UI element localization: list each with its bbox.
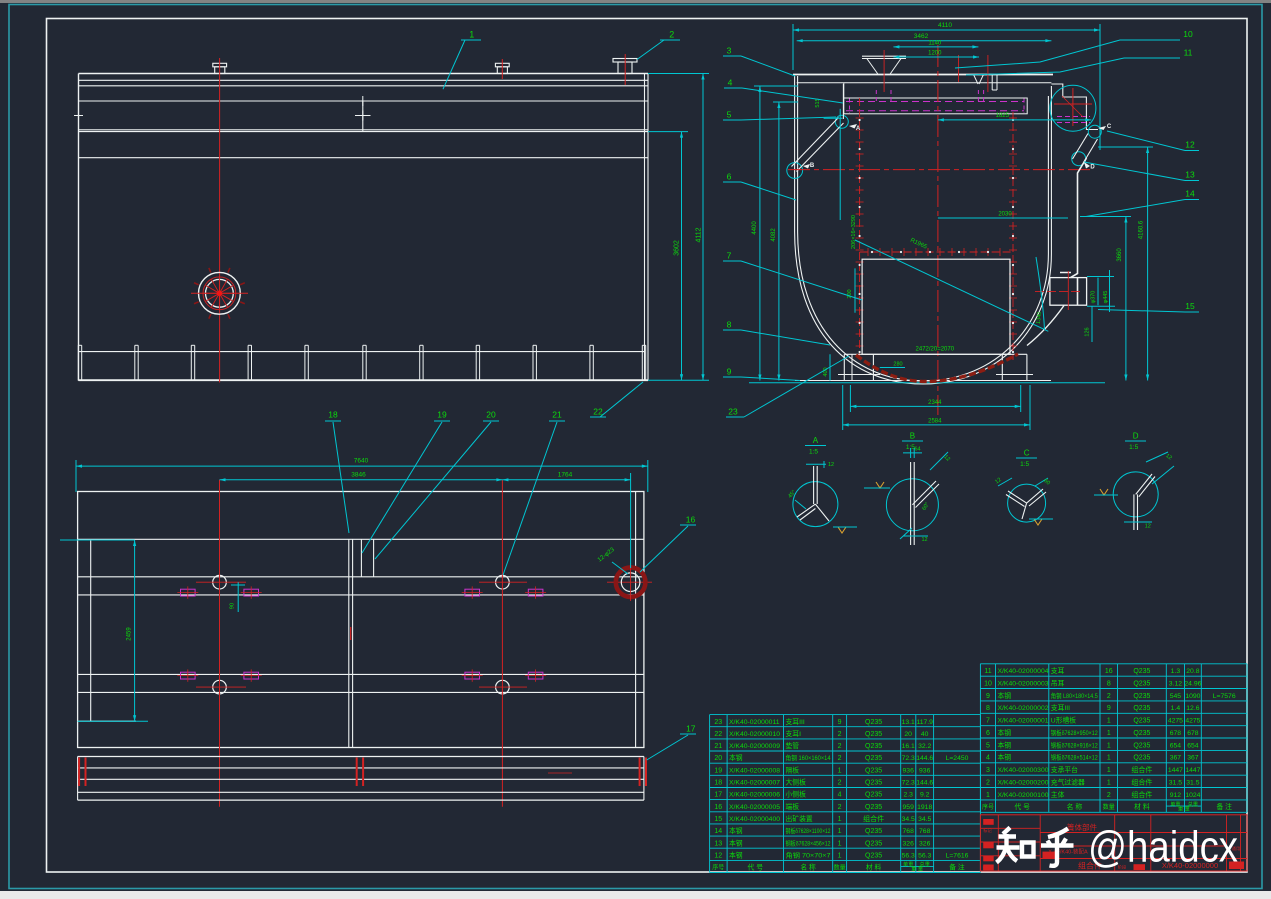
svg-text:L=7616: L=7616 (946, 852, 969, 859)
svg-text:本钢: 本钢 (729, 753, 743, 762)
svg-text:钢板δ7628×456×12: 钢板δ7628×456×12 (786, 838, 831, 847)
svg-text:9: 9 (986, 693, 990, 700)
svg-text:6: 6 (727, 172, 732, 182)
svg-text:19: 19 (437, 410, 447, 420)
svg-text:8: 8 (986, 705, 990, 712)
svg-text:9: 9 (1107, 705, 1111, 712)
svg-text:出矿装置: 出矿装置 (786, 814, 813, 823)
svg-text:13: 13 (714, 840, 722, 847)
svg-text:Q235: Q235 (1133, 693, 1150, 700)
svg-text:13.1: 13.1 (902, 719, 915, 726)
svg-text:8: 8 (727, 320, 732, 330)
svg-text:φ370: φ370 (1091, 291, 1097, 304)
svg-text:主体: 主体 (1051, 790, 1065, 799)
svg-text:Q235: Q235 (865, 719, 882, 726)
svg-text:备 注: 备 注 (1216, 802, 1232, 811)
svg-text:16.1: 16.1 (902, 743, 915, 750)
svg-text:小侧板: 小侧板 (786, 790, 807, 799)
svg-text:X/K40-02000200: X/K40-02000200 (998, 780, 1049, 787)
svg-text:2: 2 (838, 743, 842, 750)
svg-text:角钢 L80×180×14.5: 角钢 L80×180×14.5 (1051, 691, 1098, 700)
svg-text:367: 367 (1170, 755, 1182, 762)
svg-text:本钢: 本钢 (729, 838, 743, 847)
svg-text:56.3: 56.3 (918, 852, 931, 859)
svg-text:钢板δ7628×1100×12: 钢板δ7628×1100×12 (786, 826, 831, 835)
svg-text:936: 936 (919, 767, 931, 774)
svg-text:3602: 3602 (674, 240, 681, 256)
svg-text:20.8: 20.8 (1186, 668, 1199, 675)
svg-text:1: 1 (838, 828, 842, 835)
svg-text:L=7576: L=7576 (1213, 693, 1236, 700)
svg-text:367: 367 (1187, 755, 1199, 762)
svg-text:3846: 3846 (351, 472, 366, 479)
svg-text:D: D (1133, 432, 1139, 441)
svg-text:2: 2 (838, 755, 842, 762)
svg-text:959: 959 (903, 804, 915, 811)
svg-text:17: 17 (714, 792, 722, 799)
svg-text:2: 2 (1107, 693, 1111, 700)
svg-text:936: 936 (903, 767, 915, 774)
svg-text:678: 678 (1170, 730, 1182, 737)
svg-text:280: 280 (893, 361, 902, 367)
svg-text:15: 15 (714, 816, 722, 823)
svg-text:序号: 序号 (982, 803, 994, 811)
svg-text:重 量: 重 量 (911, 865, 923, 873)
svg-text:2: 2 (838, 780, 842, 787)
svg-text:7: 7 (986, 718, 990, 725)
svg-text:U形槽板: U形槽板 (1051, 716, 1077, 725)
svg-text:72.3: 72.3 (902, 780, 915, 787)
svg-text:组合件: 组合件 (1131, 790, 1152, 799)
svg-text:1: 1 (986, 792, 990, 799)
svg-text:X/K40-02000003: X/K40-02000003 (998, 681, 1049, 688)
svg-text:X/K40-02000011: X/K40-02000011 (729, 719, 780, 726)
svg-text:组合件: 组合件 (863, 814, 884, 823)
svg-text:3: 3 (727, 46, 732, 56)
svg-text:2344: 2344 (928, 400, 942, 406)
svg-text:X/K40-02000009: X/K40-02000009 (729, 743, 780, 750)
svg-text:序号: 序号 (712, 864, 724, 872)
svg-text:Q235: Q235 (865, 792, 882, 799)
svg-text:10: 10 (984, 681, 992, 688)
svg-text:545: 545 (1170, 693, 1182, 700)
svg-text:9: 9 (838, 719, 842, 726)
svg-text:1447: 1447 (1185, 767, 1200, 774)
svg-text:Q235: Q235 (865, 804, 882, 811)
svg-text:17: 17 (686, 724, 696, 734)
svg-text:A: A (813, 436, 819, 445)
svg-text:1825: 1825 (996, 113, 1010, 119)
svg-text:重 量: 重 量 (1178, 804, 1190, 812)
svg-text:组合件: 组合件 (1131, 765, 1152, 774)
svg-text:4112: 4112 (696, 227, 703, 242)
svg-text:Q235: Q235 (1133, 730, 1150, 737)
svg-text:20: 20 (486, 410, 496, 420)
svg-text:5: 5 (986, 742, 990, 749)
svg-text:吊耳: 吊耳 (1051, 680, 1065, 688)
svg-text:2: 2 (838, 731, 842, 738)
svg-text:Q235: Q235 (865, 852, 882, 859)
svg-text:21: 21 (714, 743, 722, 750)
svg-text:4275: 4275 (1168, 718, 1183, 725)
svg-text:1: 1 (1107, 755, 1111, 762)
svg-text:Q235: Q235 (1133, 668, 1150, 675)
svg-text:1200: 1200 (928, 51, 942, 57)
svg-text:12: 12 (828, 462, 834, 468)
svg-text:Q235: Q235 (865, 767, 882, 774)
svg-text:2: 2 (986, 780, 990, 787)
svg-text:Q235: Q235 (865, 840, 882, 847)
svg-text:X/K40-02000400: X/K40-02000400 (729, 816, 780, 823)
svg-text:垫管: 垫管 (786, 741, 800, 750)
svg-text:1.3: 1.3 (1171, 668, 1181, 675)
svg-text:1: 1 (1107, 780, 1111, 787)
svg-text:1: 1 (838, 840, 842, 847)
svg-text:64: 64 (914, 447, 920, 453)
svg-text:18: 18 (714, 780, 722, 787)
svg-text:126: 126 (1084, 327, 1090, 336)
svg-text:2.3: 2.3 (903, 792, 913, 799)
svg-text:19: 19 (714, 767, 722, 774)
svg-text:31.5: 31.5 (1186, 780, 1199, 787)
svg-text:16: 16 (1105, 668, 1113, 675)
svg-text:4160.6: 4160.6 (1139, 220, 1145, 239)
svg-text:2: 2 (838, 804, 842, 811)
svg-text:206×16=3290: 206×16=3290 (851, 215, 857, 249)
svg-text:B: B (910, 432, 915, 441)
svg-text:代 号: 代 号 (748, 863, 764, 872)
svg-text:1918: 1918 (917, 804, 932, 811)
svg-text:15: 15 (1185, 301, 1195, 311)
svg-text:材 料: 材 料 (866, 863, 882, 872)
svg-text:C: C (1024, 449, 1030, 458)
svg-text:5: 5 (727, 110, 732, 120)
svg-text:8: 8 (1107, 681, 1111, 688)
svg-text:4: 4 (728, 78, 733, 88)
svg-text:22: 22 (593, 407, 603, 417)
svg-text:18: 18 (328, 410, 338, 420)
svg-text:1: 1 (838, 816, 842, 823)
svg-text:X/K40-02000300: X/K40-02000300 (998, 767, 1049, 774)
svg-text:14: 14 (714, 828, 722, 835)
svg-text:X/K40-02000007: X/K40-02000007 (729, 780, 780, 787)
svg-text:10: 10 (1183, 29, 1193, 39)
svg-text:14: 14 (1185, 189, 1195, 199)
svg-text:隔板: 隔板 (786, 765, 800, 774)
svg-text:654: 654 (1187, 742, 1199, 749)
svg-text:4275: 4275 (1185, 718, 1200, 725)
svg-text:912: 912 (1170, 792, 1182, 799)
svg-text:支耳III: 支耳III (1051, 703, 1070, 712)
svg-text:A: A (856, 126, 861, 132)
svg-text:钢板δ7628×916×12: 钢板δ7628×916×12 (1051, 740, 1098, 749)
svg-text:本钢: 本钢 (998, 728, 1012, 737)
svg-text:X/K40-02000002: X/K40-02000002 (998, 705, 1049, 712)
svg-text:支耳I: 支耳I (786, 729, 802, 738)
svg-text:1:5: 1:5 (809, 449, 818, 456)
svg-text:Q235: Q235 (865, 780, 882, 787)
svg-text:X/K40-02000010: X/K40-02000010 (729, 731, 780, 738)
svg-text:1: 1 (838, 767, 842, 774)
svg-text:X/K40-02000006: X/K40-02000006 (729, 792, 780, 799)
svg-text:32.2: 32.2 (918, 743, 931, 750)
svg-text:Q235: Q235 (1133, 718, 1150, 725)
svg-text:本钢: 本钢 (998, 753, 1012, 762)
svg-text:X/K40-02000100: X/K40-02000100 (998, 792, 1049, 799)
svg-text:56.3: 56.3 (902, 852, 915, 859)
svg-text:13: 13 (1185, 170, 1195, 180)
svg-text:2: 2 (669, 30, 674, 40)
svg-text:2: 2 (1107, 792, 1111, 799)
svg-text:X/K40-02000005: X/K40-02000005 (729, 804, 780, 811)
svg-text:1: 1 (469, 30, 474, 40)
svg-text:标记: 标记 (983, 827, 992, 834)
svg-text:名 称: 名 称 (800, 863, 816, 872)
svg-text:Q235: Q235 (865, 743, 882, 750)
svg-text:23: 23 (714, 719, 722, 726)
svg-text:326: 326 (903, 840, 915, 847)
svg-text:Q235: Q235 (1133, 681, 1150, 688)
svg-text:34.5: 34.5 (918, 816, 931, 823)
svg-text:12: 12 (1185, 140, 1195, 150)
svg-text:768: 768 (919, 828, 931, 835)
svg-text:117.9: 117.9 (916, 719, 933, 726)
svg-text:3.12: 3.12 (1169, 681, 1182, 688)
svg-text:768: 768 (903, 828, 915, 835)
svg-text:4110: 4110 (938, 22, 952, 29)
svg-text:4: 4 (838, 792, 842, 799)
svg-text:@haidcx: @haidcx (1088, 823, 1238, 872)
svg-text:B: B (810, 163, 815, 169)
svg-text:1: 1 (1107, 742, 1111, 749)
svg-text:φ445: φ445 (1103, 291, 1109, 304)
svg-text:支耳: 支耳 (1051, 666, 1065, 675)
svg-text:支承平台: 支承平台 (1051, 765, 1078, 774)
svg-text:本钢: 本钢 (998, 740, 1012, 749)
svg-text:3660: 3660 (1117, 248, 1123, 262)
svg-text:34.5: 34.5 (902, 816, 915, 823)
svg-text:6: 6 (986, 730, 990, 737)
svg-text:本钢: 本钢 (998, 691, 1012, 700)
svg-text:C: C (1107, 124, 1112, 130)
svg-text:名 称: 名 称 (1067, 802, 1083, 811)
svg-text:144.6: 144.6 (916, 755, 933, 762)
svg-text:2472/20=2070: 2472/20=2070 (916, 346, 955, 352)
svg-text:20: 20 (904, 731, 912, 738)
svg-text:20: 20 (714, 755, 722, 762)
svg-text:4400: 4400 (752, 221, 758, 235)
svg-text:1447: 1447 (1168, 767, 1183, 774)
svg-text:1090: 1090 (1185, 693, 1200, 700)
svg-text:L=2450: L=2450 (946, 755, 969, 762)
svg-text:1: 1 (1107, 767, 1111, 774)
svg-text:1: 1 (838, 852, 842, 859)
svg-text:22: 22 (714, 731, 722, 738)
svg-text:Q235: Q235 (865, 755, 882, 762)
svg-text:40: 40 (921, 731, 929, 738)
svg-text:12: 12 (1145, 524, 1151, 530)
svg-text:本钢: 本钢 (729, 850, 743, 859)
svg-text:钢板δ7628×514×12: 钢板δ7628×514×12 (1051, 753, 1098, 762)
svg-text:角钢 160×160×14: 角钢 160×160×14 (786, 753, 831, 762)
svg-text:326: 326 (919, 840, 931, 847)
svg-text:数量: 数量 (834, 864, 846, 872)
svg-text:90: 90 (230, 603, 236, 609)
svg-text:备 注: 备 注 (949, 863, 965, 872)
svg-text:端板: 端板 (786, 802, 800, 811)
svg-text:X.4F/K40-装配A: X.4F/K40-装配A (1048, 848, 1088, 856)
svg-text:Q235: Q235 (1133, 742, 1150, 749)
svg-text:1764: 1764 (558, 472, 573, 479)
svg-text:2459: 2459 (127, 627, 133, 641)
svg-text:4: 4 (986, 755, 990, 762)
svg-text:31.5: 31.5 (1169, 780, 1182, 787)
svg-text:2584: 2584 (928, 418, 942, 424)
svg-text:支耳III: 支耳III (786, 717, 805, 726)
svg-text:X/K40-02000008: X/K40-02000008 (729, 767, 780, 774)
svg-text:7: 7 (727, 251, 732, 261)
svg-text:9: 9 (727, 367, 732, 377)
svg-text:16: 16 (714, 804, 722, 811)
svg-text:4082: 4082 (771, 228, 777, 242)
svg-text:Q235: Q235 (865, 828, 882, 835)
svg-text:X/K40-02000004: X/K40-02000004 (998, 668, 1049, 675)
svg-text:678: 678 (1187, 730, 1199, 737)
svg-text:1024: 1024 (1185, 792, 1200, 799)
svg-text:X/K40-02000001: X/K40-02000001 (998, 718, 1049, 725)
svg-text:充气过滤器: 充气过滤器 (1051, 778, 1085, 787)
svg-text:D: D (1090, 165, 1095, 171)
svg-text:1: 1 (1107, 730, 1111, 737)
svg-text:144.6: 144.6 (916, 780, 933, 787)
svg-text:Q235: Q235 (1133, 705, 1150, 712)
svg-text:代 号: 代 号 (1014, 802, 1030, 811)
svg-text:12.6: 12.6 (1186, 705, 1199, 712)
svg-text:7640: 7640 (354, 458, 369, 465)
svg-text:654: 654 (1170, 742, 1182, 749)
svg-text:3462: 3462 (914, 33, 929, 40)
svg-text:角钢 70×70×7: 角钢 70×70×7 (786, 850, 831, 859)
svg-text:12: 12 (714, 852, 722, 859)
svg-text:本钢: 本钢 (729, 826, 743, 835)
svg-text:21: 21 (552, 410, 562, 420)
svg-text:12: 12 (921, 537, 927, 543)
svg-text:1140: 1140 (928, 41, 942, 47)
svg-text:1:5: 1:5 (1020, 461, 1029, 468)
svg-text:1: 1 (1107, 718, 1111, 725)
svg-text:16: 16 (686, 515, 696, 525)
svg-text:大侧板: 大侧板 (786, 778, 807, 787)
svg-text:23: 23 (728, 407, 738, 417)
svg-text:72.3: 72.3 (902, 755, 915, 762)
svg-text:1:5: 1:5 (1129, 444, 1138, 451)
svg-text:组合件: 组合件 (1131, 778, 1152, 787)
svg-text:400: 400 (823, 367, 829, 376)
svg-text:9.2: 9.2 (920, 792, 930, 799)
svg-text:材 料: 材 料 (1134, 802, 1150, 811)
svg-text:24.96: 24.96 (1184, 681, 1201, 688)
svg-text:Q235: Q235 (865, 731, 882, 738)
svg-text:11: 11 (984, 668, 991, 675)
svg-text:11: 11 (1184, 48, 1193, 58)
svg-text:Q235: Q235 (1133, 755, 1150, 762)
svg-text:钢板δ7628×950×12: 钢板δ7628×950×12 (1051, 728, 1098, 737)
svg-text:数量: 数量 (1103, 803, 1115, 811)
svg-text:2030: 2030 (998, 211, 1012, 217)
svg-text:3: 3 (986, 767, 990, 774)
svg-text:1.4: 1.4 (1171, 705, 1181, 712)
